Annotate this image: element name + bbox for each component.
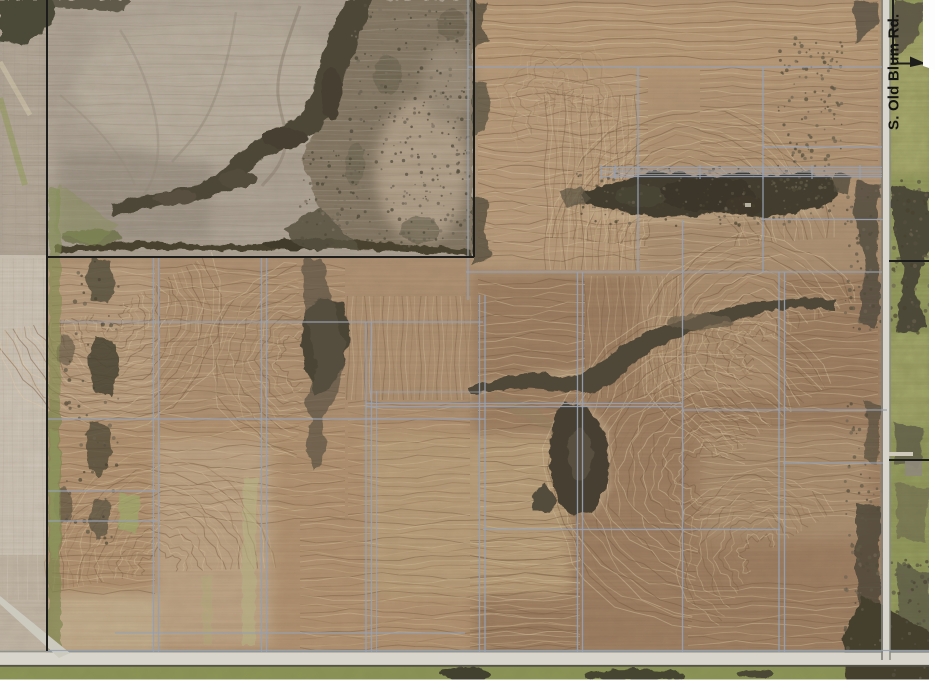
svg-text:S. Old Blum Rd.: S. Old Blum Rd. <box>886 14 903 130</box>
